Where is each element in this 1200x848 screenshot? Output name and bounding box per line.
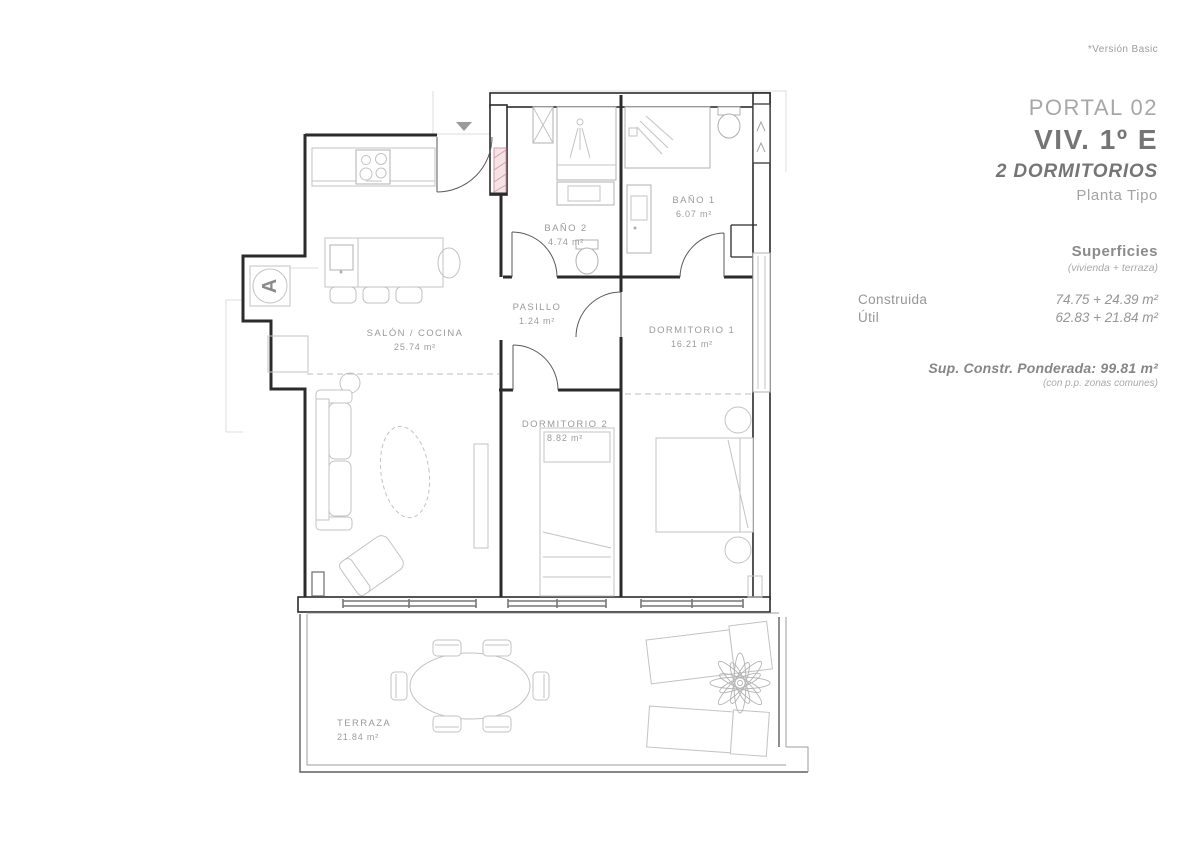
washbasin [557, 182, 614, 205]
label-bano1: BAÑO 1 [672, 195, 715, 206]
entrance-arrow-icon [456, 122, 472, 131]
area-bano1: 6.07 m² [676, 209, 712, 219]
area-pasillo: 1.24 m² [519, 316, 555, 326]
label-dormitorio2: DORMITORIO 2 [522, 419, 608, 430]
sofa-cushion [329, 403, 351, 459]
plan-header: PORTAL 02 VIV. 1º E 2 DORMITORIOS Planta… [858, 96, 1158, 204]
construida-label: Construida [858, 291, 927, 309]
plan-type: Planta Tipo [858, 187, 1158, 204]
armchair [338, 533, 407, 598]
kitchen-furniture [312, 148, 460, 303]
superficies-row-util: Útil 62.83 + 21.84 m² [858, 309, 1158, 327]
area-terraza: 21.84 m² [337, 732, 379, 742]
area-dormitorio1: 16.21 m² [671, 339, 713, 349]
label-salon: SALÓN / COCINA [367, 328, 464, 339]
label-dormitorio1: DORMITORIO 1 [649, 325, 735, 336]
terrace-windows [341, 598, 745, 609]
terrace [300, 613, 808, 772]
sink-icon [330, 245, 353, 270]
access-marker: A [250, 266, 290, 306]
label-bano2: BAÑO 2 [544, 223, 587, 234]
ponderada-note: (con p.p. zonas comunes) [818, 378, 1158, 389]
chair [363, 287, 389, 303]
bedroom2-furniture [540, 428, 614, 596]
access-marker-letter: A [259, 279, 281, 293]
entrance-door [437, 137, 492, 192]
lobby-cabinet [268, 336, 308, 372]
bedroom1-furniture [625, 253, 770, 597]
superficies-title: Superficies [858, 243, 1158, 260]
bathroom2-fixtures [533, 107, 616, 274]
rug [375, 423, 435, 521]
version-note: *Versión Basic [1088, 44, 1158, 55]
unit-type: 2 DORMITORIOS [858, 161, 1158, 183]
bathroom1-door [680, 233, 724, 277]
vent-duct [753, 104, 770, 163]
util-label: Útil [858, 309, 879, 327]
nightstand [725, 407, 751, 433]
east-window [753, 253, 770, 392]
floorplan-page: A [0, 0, 1200, 848]
services-shaft [494, 148, 506, 193]
single-bed [540, 428, 614, 596]
shower [625, 107, 710, 168]
util-value: 62.83 + 21.84 m² [1056, 309, 1158, 327]
shelf-unit [474, 444, 488, 548]
superficies-block: Superficies (vivienda + terraza) Constru… [858, 243, 1158, 327]
area-dormitorio2: 8.82 m² [547, 433, 583, 443]
column [312, 572, 324, 596]
chair [396, 287, 422, 303]
area-bano2: 4.74 m² [548, 237, 584, 247]
floor-plan: A [0, 0, 900, 848]
floor-plan-svg: A [0, 0, 900, 848]
nightstand [725, 537, 751, 563]
ponderada-value: Sup. Constr. Ponderada: 99.81 m² [818, 360, 1158, 376]
area-salon: 25.74 m² [394, 342, 436, 352]
portal-title: PORTAL 02 [858, 96, 1158, 120]
sofa-cushion [329, 461, 351, 516]
superficies-subtitle: (vivienda + terraza) [858, 262, 1158, 274]
terrace-dining-set [391, 640, 549, 732]
construida-value: 74.75 + 24.39 m² [1056, 291, 1158, 309]
chair [330, 287, 356, 303]
label-pasillo: PASILLO [513, 302, 562, 313]
living-room-furniture [312, 373, 488, 597]
toilet-icon [718, 107, 740, 138]
unit-title: VIV. 1º E [858, 124, 1158, 156]
top-wall-band [490, 93, 770, 107]
superficies-row-construida: Construida 74.75 + 24.39 m² [858, 291, 1158, 309]
bedroom2-door [513, 345, 558, 390]
label-terraza: TERRAZA [337, 718, 391, 729]
bedroom1-door [576, 292, 621, 337]
ponderada-block: Sup. Constr. Ponderada: 99.81 m² (con p.… [818, 360, 1158, 389]
bathroom1-fixtures [625, 104, 770, 253]
